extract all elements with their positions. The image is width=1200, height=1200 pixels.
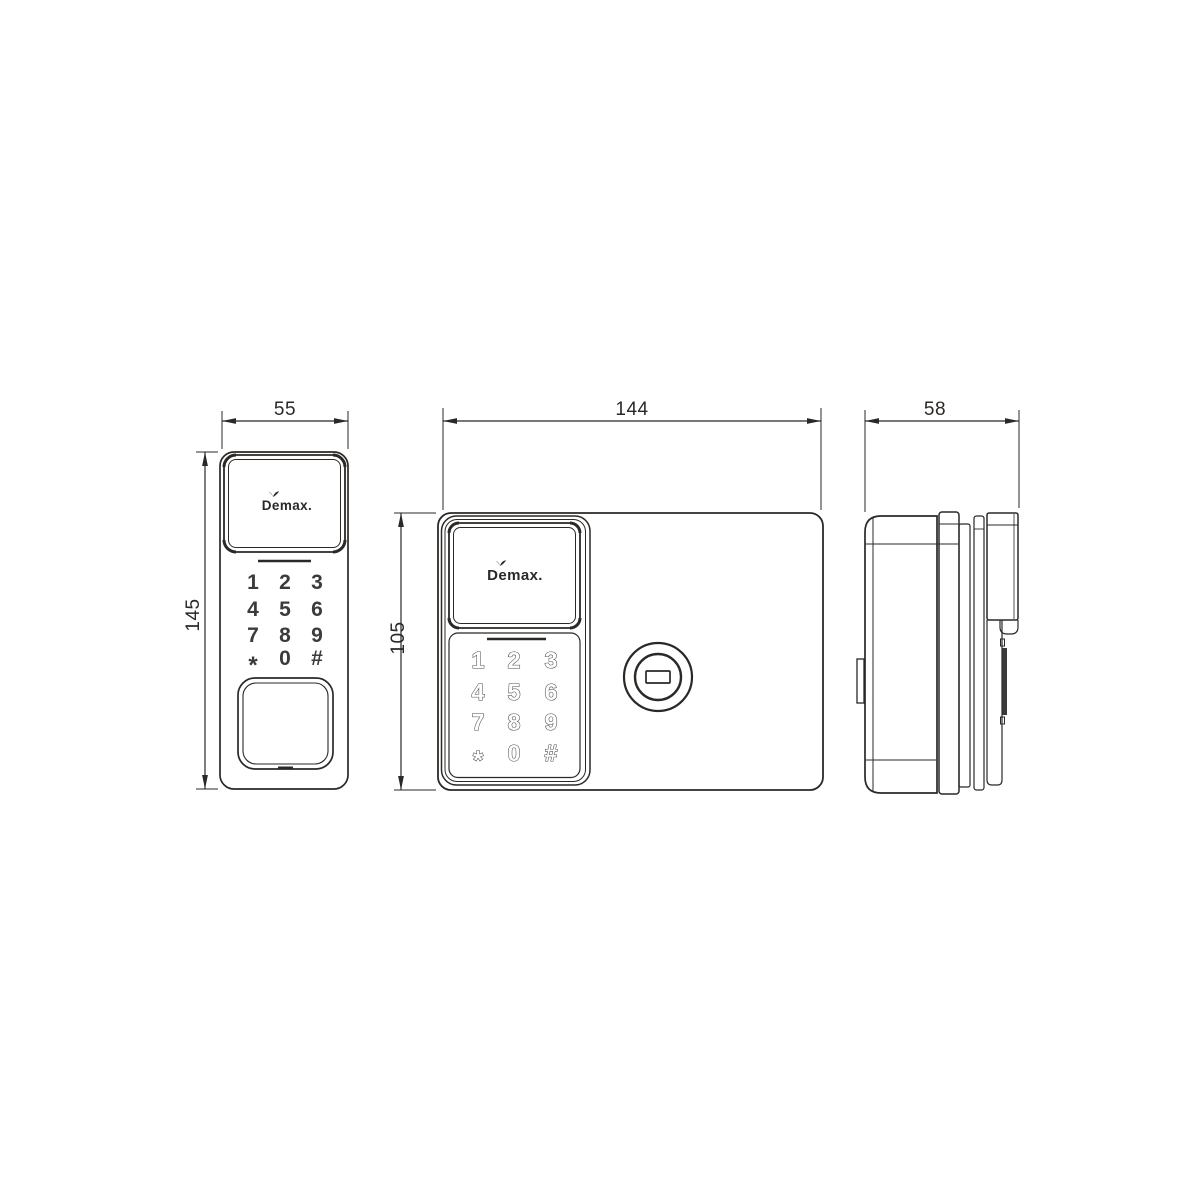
front-keypad: 1 2 3 4 5 6 7 8 9 * 0 # — [247, 571, 323, 679]
front-key-0: 0 — [279, 647, 291, 670]
front-key-1: 1 — [247, 571, 259, 594]
side-body — [865, 516, 958, 793]
main-key-5: 5 — [508, 679, 521, 705]
front-height-dimension: 145 — [183, 452, 218, 789]
side-rear-strip — [987, 620, 1007, 785]
main-key-3: 3 — [545, 647, 558, 673]
brand-logo-text: Demax. — [262, 498, 312, 513]
main-view: 144 105 Demax. — [388, 399, 823, 790]
front-display: Demax. — [224, 455, 345, 552]
front-key-hash: # — [311, 647, 323, 670]
front-key-star: * — [248, 652, 258, 679]
front-key-3: 3 — [311, 571, 323, 594]
main-key-2: 2 — [508, 647, 521, 673]
main-key-4: 4 — [472, 679, 485, 705]
main-key-9: 9 — [545, 709, 558, 735]
main-key-1: 1 — [472, 647, 485, 673]
lock-keyway-slot — [646, 671, 670, 683]
technical-drawing-canvas: 55 145 Demax. 1 2 3 — [0, 0, 1200, 1200]
main-lock-cylinder — [624, 643, 692, 711]
main-height-label: 105 — [388, 621, 409, 654]
main-left-panel: Demax. 1 2 3 4 5 6 7 8 9 * 0 # — [442, 516, 591, 785]
side-width-label: 58 — [924, 399, 946, 420]
front-key-8: 8 — [279, 624, 291, 647]
main-key-8: 8 — [508, 709, 521, 735]
front-key-2: 2 — [279, 571, 291, 594]
front-view: 55 145 Demax. 1 2 3 — [183, 399, 348, 789]
front-width-dimension: 55 — [222, 399, 348, 449]
main-height-dimension: 105 — [388, 513, 436, 790]
main-width-dimension: 144 — [443, 399, 821, 510]
brand-leaf-icon — [495, 560, 506, 566]
brand-logo: Demax. — [487, 560, 543, 584]
front-key-5: 5 — [279, 598, 291, 621]
main-key-7: 7 — [472, 709, 485, 735]
main-key-star: * — [473, 745, 484, 775]
main-display: Demax. — [449, 523, 580, 628]
front-key-4: 4 — [247, 598, 259, 621]
side-latch — [857, 659, 864, 703]
front-key-9: 9 — [311, 624, 323, 647]
front-key-6: 6 — [311, 598, 323, 621]
side-view: 58 — [857, 399, 1019, 794]
main-key-6: 6 — [545, 679, 558, 705]
front-key-7: 7 — [247, 624, 259, 647]
brand-leaf-icon — [268, 491, 279, 497]
side-rear-plate — [987, 513, 1018, 634]
side-width-dimension: 58 — [865, 399, 1019, 512]
front-fingerprint-panel — [238, 678, 333, 769]
lock-inner-ring — [635, 654, 681, 700]
main-body-outline — [438, 513, 823, 790]
main-key-hash: # — [545, 740, 558, 766]
front-width-label: 55 — [274, 399, 296, 420]
brand-logo-text: Demax. — [487, 567, 543, 584]
main-width-label: 144 — [615, 399, 648, 420]
front-height-label: 145 — [183, 598, 204, 631]
main-keypad: 1 2 3 4 5 6 7 8 9 * 0 # — [472, 647, 558, 775]
main-key-0: 0 — [508, 740, 521, 766]
side-gasket-strip — [1003, 648, 1008, 715]
brand-logo: Demax. — [262, 491, 312, 513]
side-mounting-plates — [939, 512, 984, 794]
